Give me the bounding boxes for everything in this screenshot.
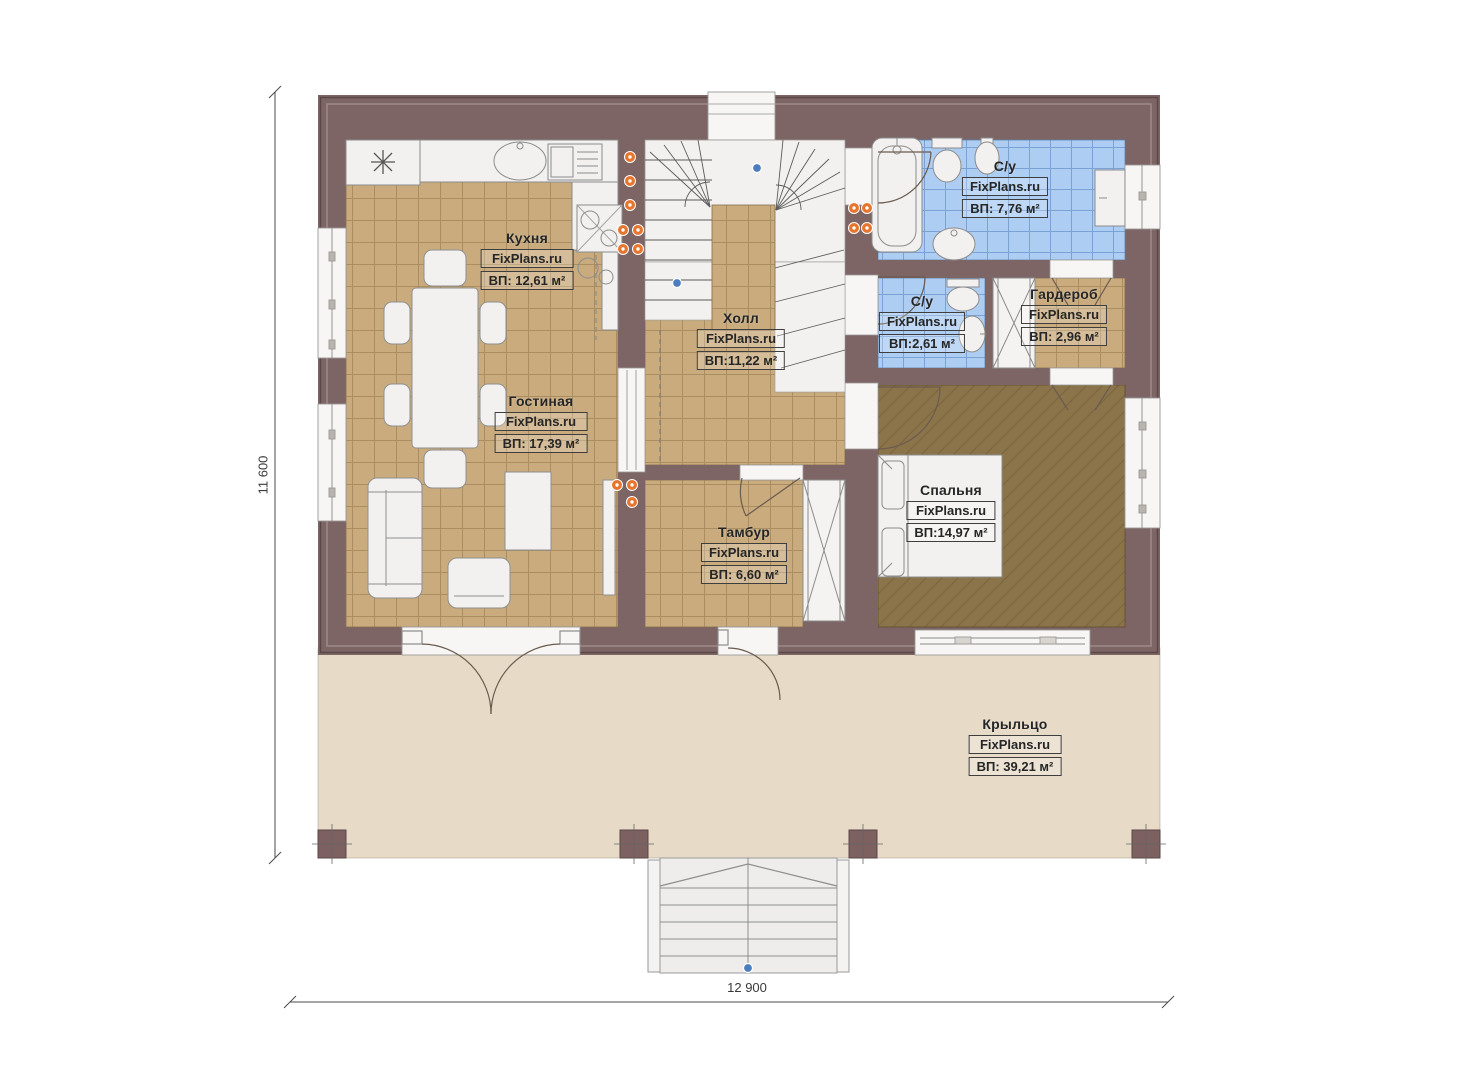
bathtub-icon bbox=[872, 138, 922, 252]
room-label-bedroom: Спальня FixPlans.ru ВП:14,97 м² bbox=[906, 482, 995, 542]
brand-box: FixPlans.ru bbox=[962, 177, 1048, 196]
room-label-bath-main: С/у FixPlans.ru ВП: 7,76 м² bbox=[962, 158, 1048, 218]
room-label-kitchen: Кухня FixPlans.ru ВП: 12,61 м² bbox=[481, 230, 574, 290]
area-box: ВП: 17,39 м² bbox=[495, 434, 588, 453]
toilet-icon bbox=[932, 138, 962, 182]
room-name: С/у bbox=[962, 158, 1048, 174]
room-name: С/у bbox=[879, 293, 965, 309]
room-name: Тамбур bbox=[701, 524, 787, 540]
room-name: Гостиная bbox=[495, 393, 588, 409]
room-name: Кухня bbox=[481, 230, 574, 246]
area-box: ВП: 12,61 м² bbox=[481, 271, 574, 290]
dining-chair bbox=[384, 384, 410, 426]
door-opening-living-porch bbox=[402, 627, 580, 655]
stair-post-marker-2 bbox=[673, 279, 682, 288]
sofa bbox=[368, 478, 422, 598]
room-name: Крыльцо bbox=[969, 716, 1062, 732]
step-marker bbox=[744, 964, 753, 973]
room-label-living: Гостиная FixPlans.ru ВП: 17,39 м² bbox=[495, 393, 588, 453]
dining-chair bbox=[384, 302, 410, 344]
dining-chair bbox=[424, 450, 466, 488]
brand-box: FixPlans.ru bbox=[481, 249, 574, 268]
room-label-bath-small: С/у FixPlans.ru ВП:2,61 м² bbox=[879, 293, 965, 353]
kitchen-tall-cabinet bbox=[602, 250, 618, 330]
dimension-line-bottom bbox=[284, 996, 1174, 1008]
area-box: ВП: 6,60 м² bbox=[701, 565, 787, 584]
opening-wardrobe-top bbox=[1050, 260, 1113, 278]
brand-box: FixPlans.ru bbox=[701, 543, 787, 562]
window-left-1 bbox=[318, 228, 346, 358]
area-box: ВП: 39,21 м² bbox=[969, 757, 1062, 776]
bathroom-cabinet bbox=[1095, 170, 1125, 226]
vestibule-closet bbox=[803, 480, 845, 621]
window-top-stairwell bbox=[708, 92, 775, 140]
dimension-width-label: 12 900 bbox=[727, 980, 767, 995]
brand-box: FixPlans.ru bbox=[879, 312, 965, 331]
room-name: Спальня bbox=[906, 482, 995, 498]
room-label-hall: Холл FixPlans.ru ВП:11,22 м² bbox=[697, 310, 785, 370]
area-box: ВП: 2,96 м² bbox=[1021, 327, 1107, 346]
room-label-porch: Крыльцо FixPlans.ru ВП: 39,21 м² bbox=[969, 716, 1062, 776]
opening-wardrobe-bedroom bbox=[1050, 368, 1113, 385]
room-name: Гардероб bbox=[1021, 286, 1107, 302]
stove-icon bbox=[577, 205, 622, 252]
area-box: ВП:11,22 м² bbox=[697, 351, 785, 370]
brand-box: FixPlans.ru bbox=[495, 412, 588, 431]
window-right-bedroom bbox=[1125, 398, 1160, 528]
step-rail-left bbox=[648, 860, 660, 972]
armchair bbox=[448, 558, 510, 608]
brand-box: FixPlans.ru bbox=[1021, 305, 1107, 324]
stair-post-marker-1 bbox=[753, 164, 762, 173]
window-bottom-bedroom bbox=[915, 630, 1090, 655]
washbasin-icon bbox=[933, 228, 975, 260]
wall-bath-small-wardrobe bbox=[985, 278, 993, 368]
dimension-line-left bbox=[269, 86, 281, 864]
kitchen-counter-top bbox=[420, 140, 618, 182]
room-name: Холл bbox=[697, 310, 785, 326]
opening-hall-vestibule bbox=[740, 465, 803, 480]
area-box: ВП:2,61 м² bbox=[879, 334, 965, 353]
brand-box: FixPlans.ru bbox=[906, 501, 995, 520]
area-box: ВП: 7,76 м² bbox=[962, 199, 1048, 218]
dining-table bbox=[412, 288, 478, 448]
dining-chair bbox=[424, 250, 466, 286]
entrance-steps bbox=[648, 858, 849, 973]
opening-living-hall bbox=[618, 368, 645, 472]
vent-asterisk-icon bbox=[371, 150, 395, 174]
opening-bedroom bbox=[845, 383, 878, 449]
opening-bath-small bbox=[845, 275, 878, 335]
room-label-wardrobe: Гардероб FixPlans.ru ВП: 2,96 м² bbox=[1021, 286, 1107, 346]
coffee-table bbox=[505, 472, 551, 550]
window-left-2 bbox=[318, 404, 346, 521]
floor-plan-page: Кухня FixPlans.ru ВП: 12,61 м² Холл FixP… bbox=[0, 0, 1474, 1080]
area-box: ВП:14,97 м² bbox=[906, 523, 995, 542]
room-label-vestibule: Тамбур FixPlans.ru ВП: 6,60 м² bbox=[701, 524, 787, 584]
step-rail-right bbox=[837, 860, 849, 972]
brand-box: FixPlans.ru bbox=[969, 735, 1062, 754]
dimension-height-label: 11 600 bbox=[256, 456, 271, 495]
brand-box: FixPlans.ru bbox=[697, 329, 785, 348]
radiator bbox=[603, 480, 615, 595]
window-right-bath bbox=[1125, 165, 1160, 229]
dining-chair bbox=[480, 302, 506, 344]
